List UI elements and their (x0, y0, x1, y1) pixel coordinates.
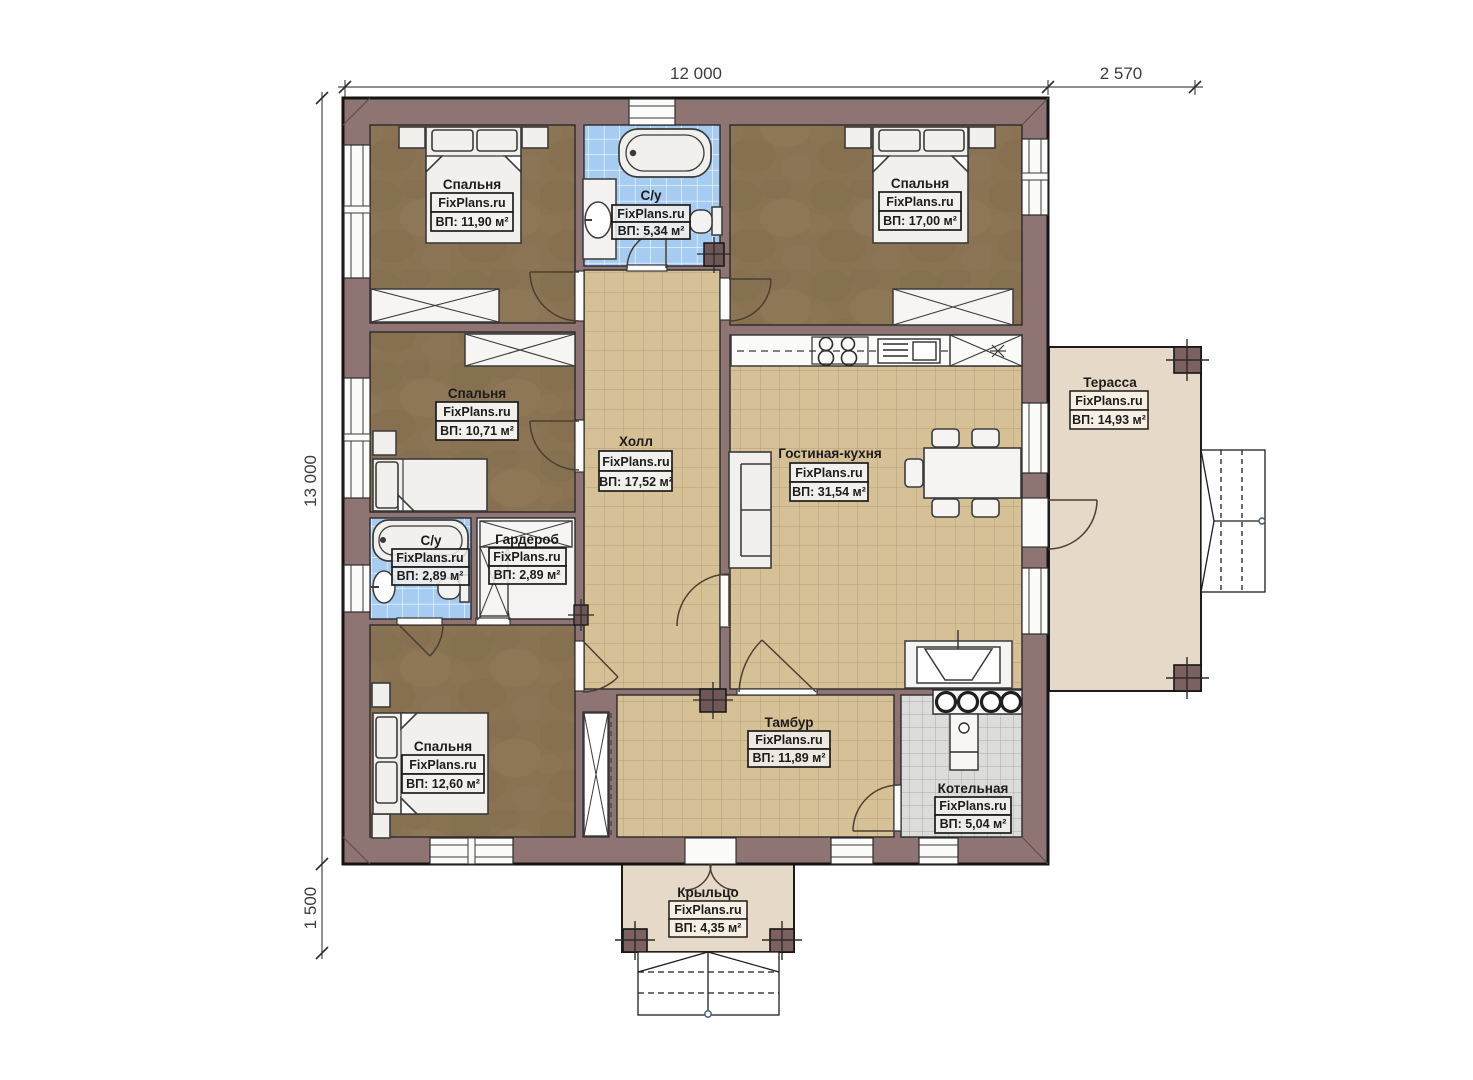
svg-text:ВП: 14,93 м²: ВП: 14,93 м² (1072, 413, 1146, 427)
svg-text:ВП: 10,71 м²: ВП: 10,71 м² (440, 424, 514, 438)
svg-text:ВП: 2,89 м²: ВП: 2,89 м² (397, 569, 464, 583)
svg-text:Спальня: Спальня (443, 177, 501, 192)
svg-text:ВП: 5,34 м²: ВП: 5,34 м² (618, 224, 685, 238)
svg-text:12 000: 12 000 (670, 64, 722, 83)
svg-text:С/у: С/у (640, 188, 662, 203)
svg-text:Тамбур: Тамбур (765, 715, 814, 730)
svg-text:Гостиная-кухня: Гостиная-кухня (778, 446, 881, 461)
svg-text:ВП: 4,35 м²: ВП: 4,35 м² (675, 921, 742, 935)
svg-text:FixPlans.ru: FixPlans.ru (939, 799, 1006, 813)
svg-text:FixPlans.ru: FixPlans.ru (409, 758, 476, 772)
svg-text:Спальня: Спальня (891, 176, 949, 191)
svg-text:Котельная: Котельная (938, 781, 1009, 796)
svg-text:ВП: 11,90 м²: ВП: 11,90 м² (435, 215, 508, 229)
svg-text:ВП: 17,00 м²: ВП: 17,00 м² (883, 214, 957, 228)
svg-text:1 500: 1 500 (301, 887, 320, 930)
svg-text:FixPlans.ru: FixPlans.ru (795, 466, 862, 480)
svg-text:FixPlans.ru: FixPlans.ru (674, 903, 741, 917)
svg-text:Крыльцо: Крыльцо (677, 885, 738, 900)
svg-text:Холл: Холл (619, 434, 653, 449)
svg-text:FixPlans.ru: FixPlans.ru (493, 550, 560, 564)
svg-text:FixPlans.ru: FixPlans.ru (602, 455, 669, 469)
svg-text:FixPlans.ru: FixPlans.ru (886, 195, 953, 209)
svg-text:FixPlans.ru: FixPlans.ru (617, 207, 684, 221)
svg-text:Гардероб: Гардероб (495, 532, 559, 547)
svg-text:Терасса: Терасса (1083, 375, 1137, 390)
svg-text:ВП: 31,54 м²: ВП: 31,54 м² (792, 485, 866, 499)
svg-text:Спальня: Спальня (448, 386, 506, 401)
svg-text:13 000: 13 000 (301, 455, 320, 507)
svg-text:FixPlans.ru: FixPlans.ru (1075, 394, 1142, 408)
svg-text:ВП: 17,52 м²: ВП: 17,52 м² (599, 475, 673, 489)
svg-text:FixPlans.ru: FixPlans.ru (396, 551, 463, 565)
svg-text:Спальня: Спальня (414, 739, 472, 754)
svg-text:FixPlans.ru: FixPlans.ru (443, 405, 510, 419)
svg-text:ВП: 5,04 м²: ВП: 5,04 м² (940, 817, 1007, 831)
svg-text:ВП: 11,89 м²: ВП: 11,89 м² (752, 751, 825, 765)
svg-text:ВП: 12,60 м²: ВП: 12,60 м² (406, 777, 480, 791)
svg-text:С/у: С/у (420, 533, 442, 548)
svg-text:2 570: 2 570 (1100, 64, 1143, 83)
svg-text:FixPlans.ru: FixPlans.ru (438, 196, 505, 210)
svg-text:ВП: 2,89 м²: ВП: 2,89 м² (494, 568, 561, 582)
svg-text:FixPlans.ru: FixPlans.ru (755, 733, 822, 747)
